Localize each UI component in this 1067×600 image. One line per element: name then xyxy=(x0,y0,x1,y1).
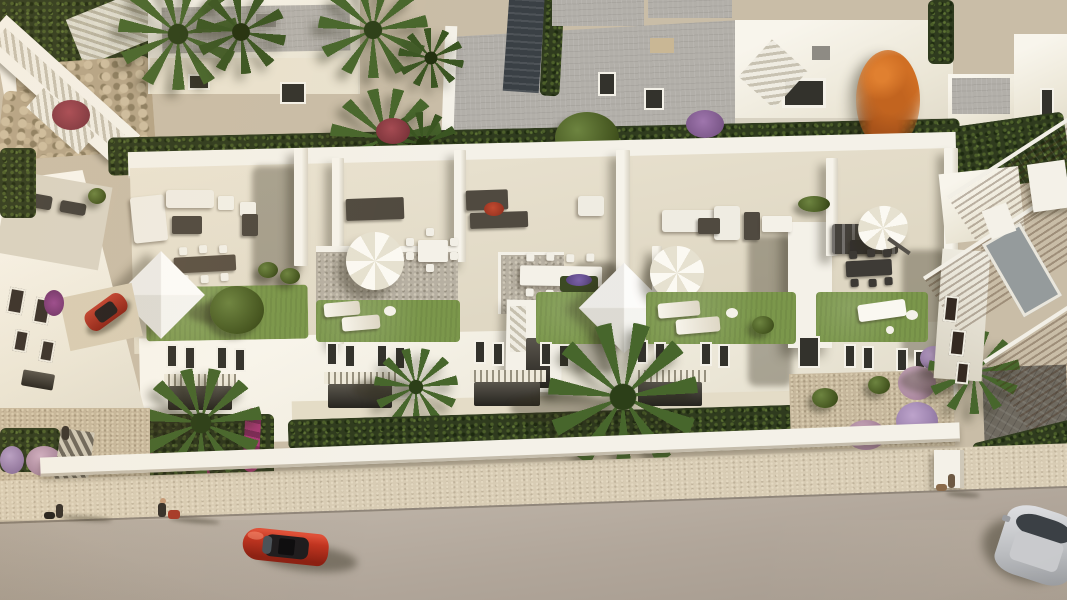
window xyxy=(326,342,338,366)
path-person xyxy=(62,426,92,446)
chair xyxy=(850,279,858,287)
dining-table xyxy=(174,254,237,273)
stroller-person xyxy=(156,498,226,528)
window xyxy=(492,342,504,366)
dining-table xyxy=(846,259,893,277)
kitchen-counter xyxy=(744,212,760,240)
chair xyxy=(406,252,414,260)
dog xyxy=(44,512,55,519)
lawn-ball xyxy=(886,326,894,334)
window xyxy=(844,344,856,368)
dining-table xyxy=(418,240,448,262)
chair xyxy=(450,252,458,260)
coffee-table xyxy=(172,216,202,234)
window xyxy=(862,346,874,370)
chair xyxy=(868,279,876,287)
upper-house-d-roof xyxy=(952,78,1010,114)
purple-bush xyxy=(686,110,724,138)
hedge-column xyxy=(928,0,954,64)
red-bush xyxy=(52,100,90,130)
shadow xyxy=(946,491,980,498)
dining-set-dark xyxy=(835,248,907,292)
lilac-bush xyxy=(0,446,24,474)
person xyxy=(56,504,63,518)
window xyxy=(344,344,356,368)
window xyxy=(598,72,616,96)
gray-roof-c xyxy=(648,0,732,18)
lawn-plant xyxy=(752,316,774,334)
chair xyxy=(867,249,875,257)
patio-table xyxy=(762,216,792,232)
chair xyxy=(884,277,892,285)
small-tree xyxy=(210,286,264,334)
gray-roof-b xyxy=(552,0,644,26)
divider-wall xyxy=(294,148,308,266)
window xyxy=(700,342,712,366)
stair-treads xyxy=(510,306,526,352)
window xyxy=(718,344,730,368)
dining-set xyxy=(404,228,460,276)
window xyxy=(644,88,664,110)
terrace-plant xyxy=(88,188,106,204)
kitchen-counter xyxy=(242,214,258,236)
coffee-table xyxy=(698,218,720,234)
side-table xyxy=(906,310,918,320)
bougainvillea xyxy=(44,290,64,316)
outdoor-sofa xyxy=(166,190,214,208)
person xyxy=(948,474,955,488)
left-edge-planting xyxy=(0,148,36,218)
chair xyxy=(586,253,594,261)
shadow xyxy=(60,514,112,523)
side-table xyxy=(726,308,738,318)
dog-walker-left xyxy=(44,502,114,528)
solar-panel-strip xyxy=(503,0,546,93)
palm-tree xyxy=(398,28,464,88)
dog-walker-right xyxy=(936,472,986,502)
chair xyxy=(849,251,857,259)
red-flower-pot xyxy=(484,202,504,216)
villa-window xyxy=(955,361,970,384)
planter xyxy=(258,262,278,278)
chair xyxy=(199,245,207,253)
window xyxy=(184,346,196,370)
chair xyxy=(426,264,434,272)
garden-bench xyxy=(578,196,604,216)
person xyxy=(62,426,69,440)
side-table xyxy=(384,306,396,316)
round-parasol xyxy=(346,232,404,290)
roof-vent xyxy=(650,38,674,53)
chair xyxy=(883,249,891,257)
chair xyxy=(179,247,187,255)
chair xyxy=(566,254,574,262)
chair xyxy=(406,238,414,246)
aerial-render-scene xyxy=(0,0,1067,600)
stroller xyxy=(168,510,180,519)
purple-flowers xyxy=(566,274,592,286)
chair xyxy=(526,253,534,261)
chair xyxy=(546,253,554,261)
chair xyxy=(200,275,208,283)
window xyxy=(234,348,246,372)
road-shading xyxy=(0,520,1067,600)
window xyxy=(474,340,486,364)
chair xyxy=(426,228,434,236)
planter xyxy=(280,268,300,284)
roof-hatch xyxy=(812,46,830,60)
dog xyxy=(936,484,947,491)
planter xyxy=(798,196,830,212)
chair xyxy=(450,238,458,246)
chair xyxy=(526,288,534,296)
villa-window xyxy=(943,295,960,322)
window xyxy=(540,342,552,366)
window xyxy=(166,344,178,368)
villa-chimney xyxy=(1027,160,1067,213)
terrace-lawn xyxy=(646,292,796,344)
villa-window xyxy=(949,329,967,356)
chair xyxy=(220,273,228,281)
person-body xyxy=(158,503,166,517)
window xyxy=(216,346,228,370)
outdoor-sofa xyxy=(130,194,169,243)
red-bush xyxy=(376,118,410,144)
shrub xyxy=(812,388,838,408)
chair xyxy=(219,245,227,253)
slat-awning xyxy=(470,370,546,382)
car-sunroof xyxy=(278,538,296,556)
shrub xyxy=(868,376,890,394)
modular-sofa xyxy=(662,206,744,242)
kitchen-counter xyxy=(346,197,405,221)
armchair xyxy=(218,196,234,210)
glass-door xyxy=(280,82,306,104)
window xyxy=(798,336,820,368)
